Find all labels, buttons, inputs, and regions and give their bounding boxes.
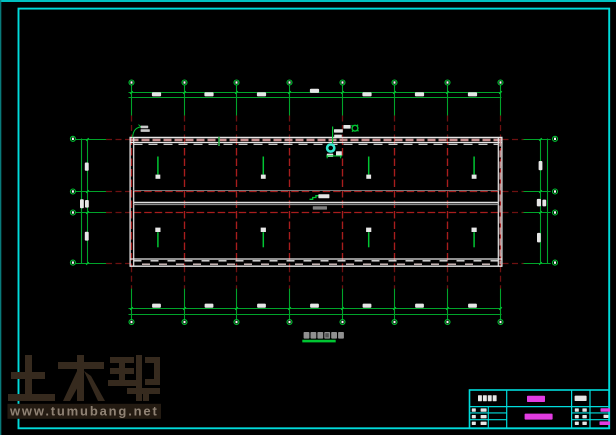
svg-text:www.tumubang.net: www.tumubang.net	[9, 404, 158, 419]
